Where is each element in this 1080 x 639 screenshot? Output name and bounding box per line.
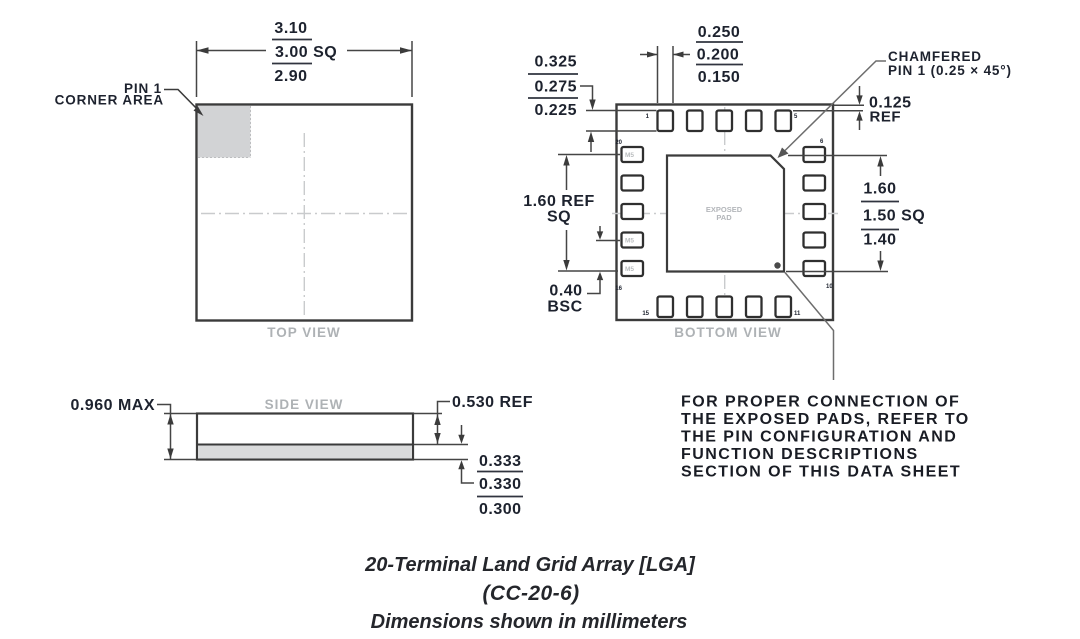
svg-text:0.530 REF: 0.530 REF: [452, 394, 533, 411]
svg-text:CORNER AREA: CORNER AREA: [55, 93, 164, 108]
svg-text:SIDE VIEW: SIDE VIEW: [265, 397, 344, 412]
svg-text:1.50 SQ: 1.50 SQ: [863, 208, 925, 225]
svg-text:CHAMFERED: CHAMFERED: [888, 49, 982, 64]
svg-text:(CC-20-6): (CC-20-6): [483, 582, 580, 605]
svg-text:0.275: 0.275: [534, 79, 577, 96]
svg-text:TOP VIEW: TOP VIEW: [267, 325, 341, 340]
svg-text:0.300: 0.300: [479, 501, 522, 518]
svg-text:3.00 SQ: 3.00 SQ: [275, 44, 337, 61]
svg-text:FOR PROPER CONNECTION OF: FOR PROPER CONNECTION OF: [681, 394, 960, 411]
svg-text:1.60 REF: 1.60 REF: [523, 193, 595, 210]
svg-text:SECTION OF THIS DATA SHEET: SECTION OF THIS DATA SHEET: [681, 464, 961, 481]
svg-text:0.150: 0.150: [698, 69, 741, 86]
svg-text:11: 11: [794, 311, 801, 317]
svg-text:BSC: BSC: [547, 299, 582, 316]
svg-text:2.90: 2.90: [274, 68, 307, 85]
svg-text:PAD: PAD: [716, 213, 732, 222]
svg-text:0.325: 0.325: [534, 54, 577, 71]
svg-text:0.333: 0.333: [479, 453, 522, 470]
svg-text:10: 10: [826, 284, 833, 290]
svg-text:1.60: 1.60: [863, 181, 896, 198]
svg-text:PIN 1 (0.25 × 45°): PIN 1 (0.25 × 45°): [888, 63, 1012, 78]
svg-text:15: 15: [642, 311, 649, 317]
svg-text:M5: M5: [625, 238, 634, 245]
svg-text:3.10: 3.10: [274, 20, 307, 37]
svg-text:20-Terminal Land Grid Array [L: 20-Terminal Land Grid Array [LGA]: [364, 554, 696, 576]
svg-text:REF: REF: [870, 109, 902, 126]
svg-text:0.960 MAX: 0.960 MAX: [70, 397, 155, 414]
svg-text:FUNCTION DESCRIPTIONS: FUNCTION DESCRIPTIONS: [681, 446, 919, 463]
svg-text:1.40: 1.40: [863, 232, 896, 249]
svg-text:Dimensions shown in millimeter: Dimensions shown in millimeters: [371, 611, 688, 633]
svg-text:BOTTOM VIEW: BOTTOM VIEW: [674, 325, 782, 340]
svg-text:M5: M5: [625, 266, 634, 273]
svg-text:0.250: 0.250: [698, 24, 741, 41]
svg-text:16: 16: [615, 286, 622, 292]
svg-text:0.200: 0.200: [697, 47, 740, 64]
svg-text:THE PIN CONFIGURATION AND: THE PIN CONFIGURATION AND: [681, 429, 957, 446]
svg-text:0.225: 0.225: [534, 102, 577, 119]
svg-text:0.330: 0.330: [479, 476, 522, 493]
svg-text:M5: M5: [625, 152, 634, 159]
svg-text:THE EXPOSED PADS, REFER TO: THE EXPOSED PADS, REFER TO: [681, 411, 970, 428]
svg-text:0.40: 0.40: [549, 283, 582, 300]
svg-text:20: 20: [615, 140, 622, 146]
svg-text:SQ: SQ: [547, 209, 571, 226]
